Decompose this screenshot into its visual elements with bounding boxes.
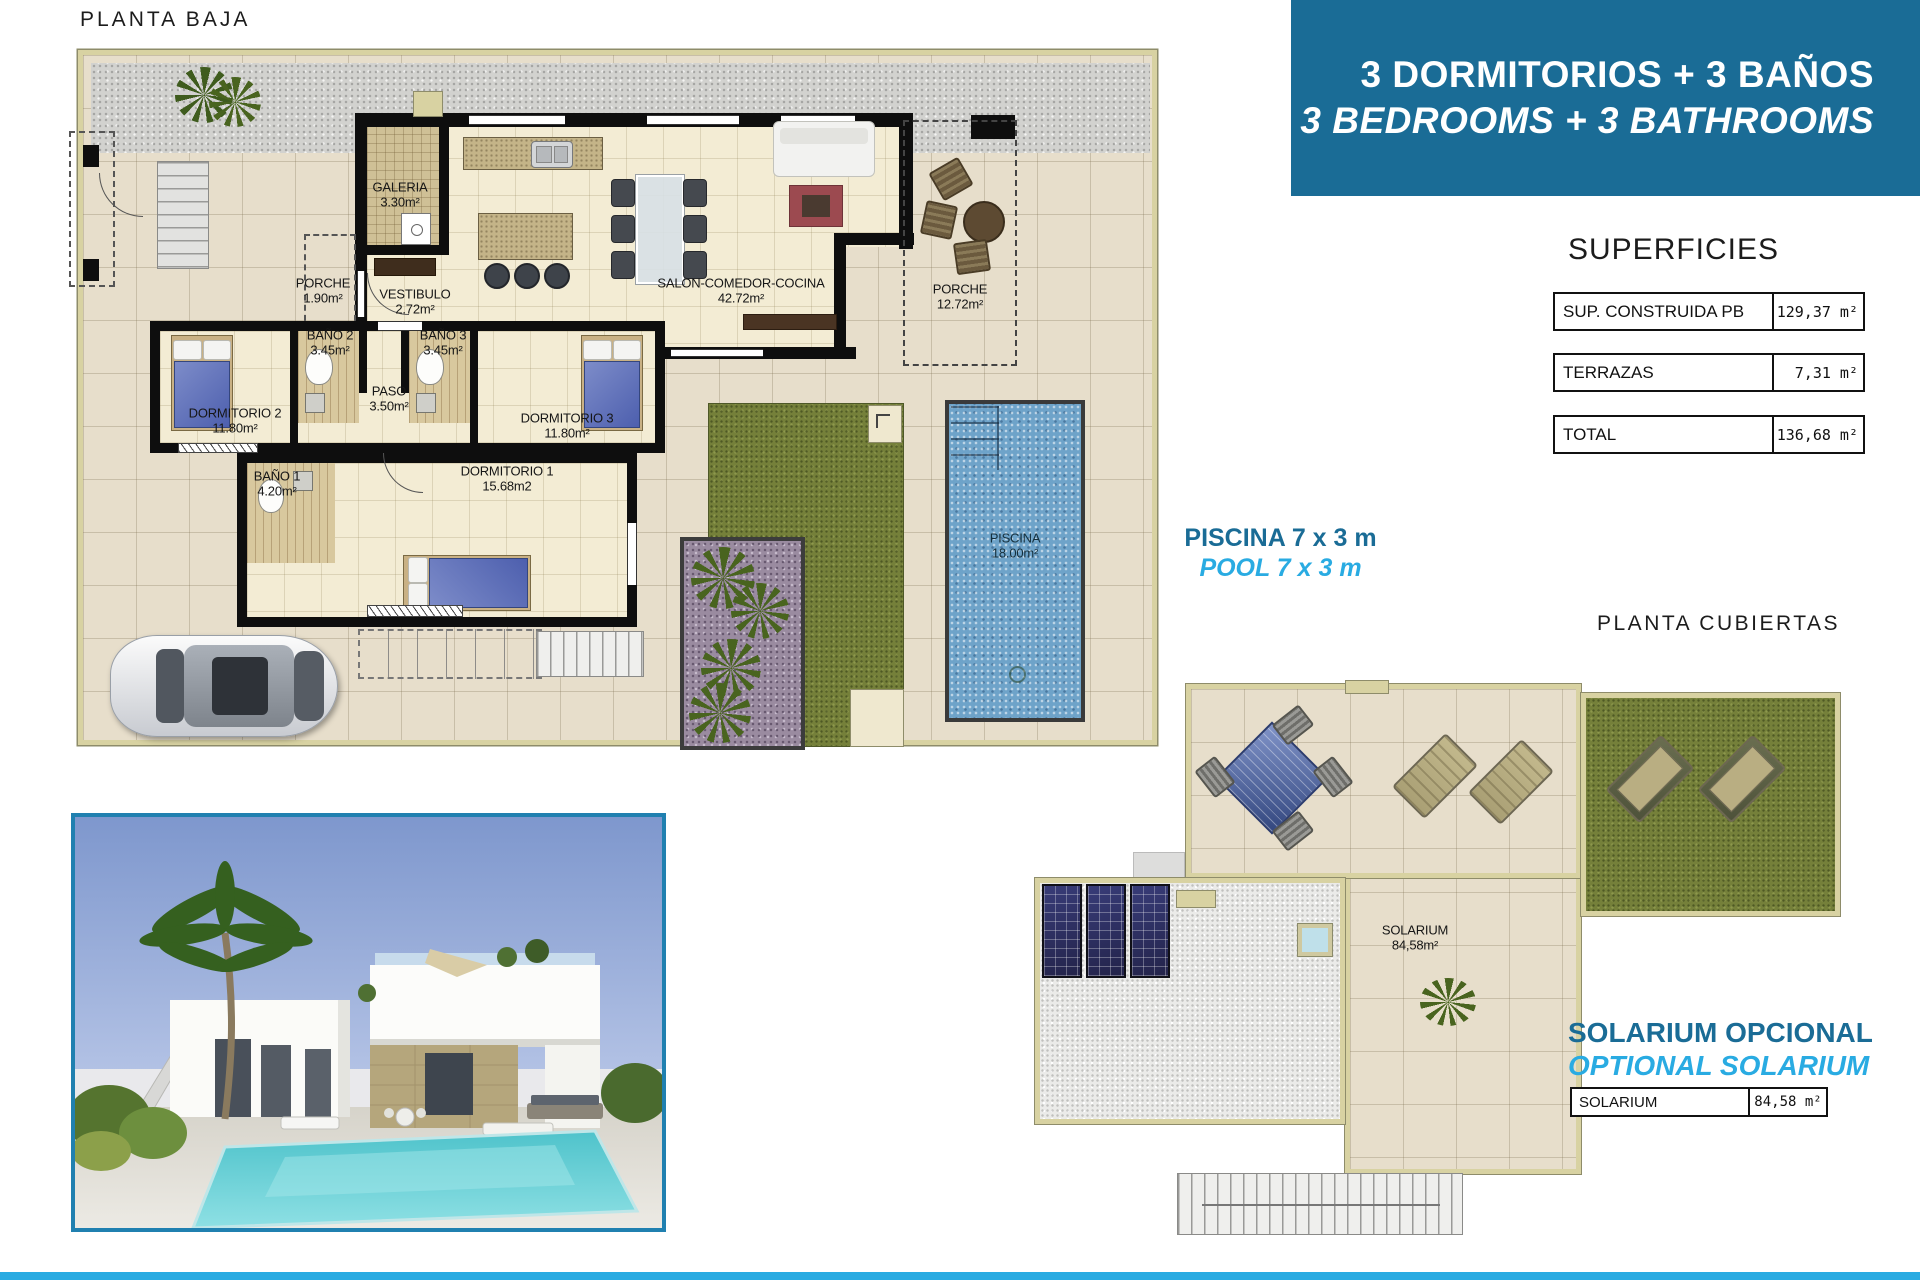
kitchen-sink — [531, 141, 573, 168]
pool-drain — [1009, 666, 1026, 683]
chair — [683, 215, 707, 243]
room-label-bano2: BAÑO 23.45m² — [307, 328, 353, 357]
door-opening — [378, 321, 422, 331]
exterior-stairs-bottom — [536, 631, 644, 677]
roof-plan-title: PLANTA CUBIERTAS — [1597, 612, 1840, 636]
solar-panel — [1086, 884, 1126, 978]
wall — [470, 331, 478, 443]
door-opening — [357, 271, 365, 317]
car-windshield — [294, 651, 324, 721]
floorplan-sheet: PLANTA BAJA — [0, 0, 1920, 1280]
superficies-row: TOTAL 136,68 m² — [1553, 415, 1865, 454]
window-hatch — [178, 443, 258, 453]
roof-plant — [1420, 978, 1476, 1026]
room-label-vestibulo: VESTIBULO2.72m² — [379, 287, 450, 316]
window — [627, 523, 637, 585]
superficies-title: SUPERFICIES — [1568, 233, 1779, 267]
car-roof — [184, 645, 294, 727]
room-label-salon: SALON-COMEDOR-COCINA42.72m² — [657, 276, 824, 305]
room-label-dorm3: DORMITORIO 311.80m² — [521, 411, 614, 440]
wall — [439, 119, 449, 253]
palm-plant — [689, 683, 751, 743]
wall — [355, 245, 449, 255]
solar-panel — [1130, 884, 1170, 978]
bed — [403, 555, 531, 611]
superficies-row: SUP. CONSTRUIDA PB 129,37 m² — [1553, 292, 1865, 331]
kitchen-island — [478, 213, 573, 260]
skylight — [1298, 924, 1332, 956]
room-label-solarium: SOLARIUM84,58m² — [1382, 923, 1448, 952]
window-hatch — [367, 605, 463, 617]
solarium-table: SOLARIUM 84,58 m² — [1570, 1087, 1828, 1117]
bottom-accent-bar — [0, 1272, 1920, 1280]
header-line-en: 3 BEDROOMS + 3 BATHROOMS — [1300, 100, 1874, 142]
roof-stairs — [1177, 1173, 1463, 1235]
car-rear-window — [156, 649, 184, 723]
chair — [611, 215, 635, 243]
roof-tab — [1345, 680, 1389, 694]
stool — [484, 263, 510, 289]
wall — [834, 233, 846, 359]
window-sliding — [671, 349, 763, 357]
stool — [544, 263, 570, 289]
round-table — [963, 201, 1005, 243]
roof-plan: SOLARIUM84,58m² — [1030, 684, 1875, 1240]
room-label-porche1: PORCHE1.90m² — [296, 276, 350, 305]
room-label-porche2: PORCHE12.72m² — [933, 282, 987, 311]
sink — [305, 393, 325, 413]
lawn-notch — [850, 689, 904, 747]
pool-steps — [951, 406, 999, 470]
villa-photo-render — [75, 817, 662, 1228]
car-topview — [110, 635, 338, 737]
window — [469, 115, 565, 125]
entry-pillar — [83, 259, 99, 281]
washing-machine — [401, 213, 431, 245]
room-label-piscina: PISCINA18.00m² — [990, 531, 1041, 560]
chair — [611, 251, 635, 279]
chimney — [413, 91, 443, 117]
entry-pillar — [83, 145, 99, 167]
header-line-es: 3 DORMITORIOS + 3 BAÑOS — [1361, 54, 1875, 96]
chair — [953, 239, 991, 275]
sink — [416, 393, 436, 413]
room-label-dorm1: DORMITORIO 115.68m2 — [461, 464, 554, 493]
exterior-stairs-left — [157, 161, 209, 269]
room-label-bano3: BAÑO 33.45m² — [420, 328, 466, 357]
carport-dashed — [358, 629, 542, 679]
plant — [209, 77, 261, 127]
dining-table — [636, 175, 684, 284]
sideboard — [374, 258, 436, 276]
ground-floor-title: PLANTA BAJA — [80, 8, 250, 32]
rug — [789, 185, 843, 227]
tv-sideboard — [743, 314, 837, 330]
chair — [611, 179, 635, 207]
stool — [514, 263, 540, 289]
room-label-paso: PASO3.50m² — [369, 384, 408, 413]
header-banner: 3 DORMITORIOS + 3 BAÑOS 3 BEDROOMS + 3 B… — [1291, 0, 1920, 196]
ground-floor-plan: GALERIA3.30m² PORCHE1.90m² VESTIBULO2.72… — [78, 50, 1157, 745]
palm-plant — [731, 583, 789, 639]
pool — [945, 400, 1085, 722]
superficies-row: TERRAZAS 7,31 m² — [1553, 353, 1865, 392]
sprinkler-box — [868, 405, 902, 443]
solar-panel — [1042, 884, 1082, 978]
room-label-galeria: GALERIA3.30m² — [373, 180, 428, 209]
room-label-bano1: BAÑO 14.20m² — [254, 469, 300, 498]
sofa — [773, 121, 875, 177]
solarium-note: SOLARIUM OPCIONAL OPTIONAL SOLARIUM — [1568, 1016, 1873, 1082]
wall — [290, 331, 298, 443]
chair — [683, 179, 707, 207]
room-label-dorm2: DORMITORIO 211.80m² — [189, 406, 282, 435]
window — [647, 115, 739, 125]
pool-note: PISCINA 7 x 3 m POOL 7 x 3 m — [1163, 524, 1398, 583]
wall — [359, 331, 367, 393]
villa-photo — [71, 813, 666, 1232]
roof-vent — [1176, 890, 1216, 908]
